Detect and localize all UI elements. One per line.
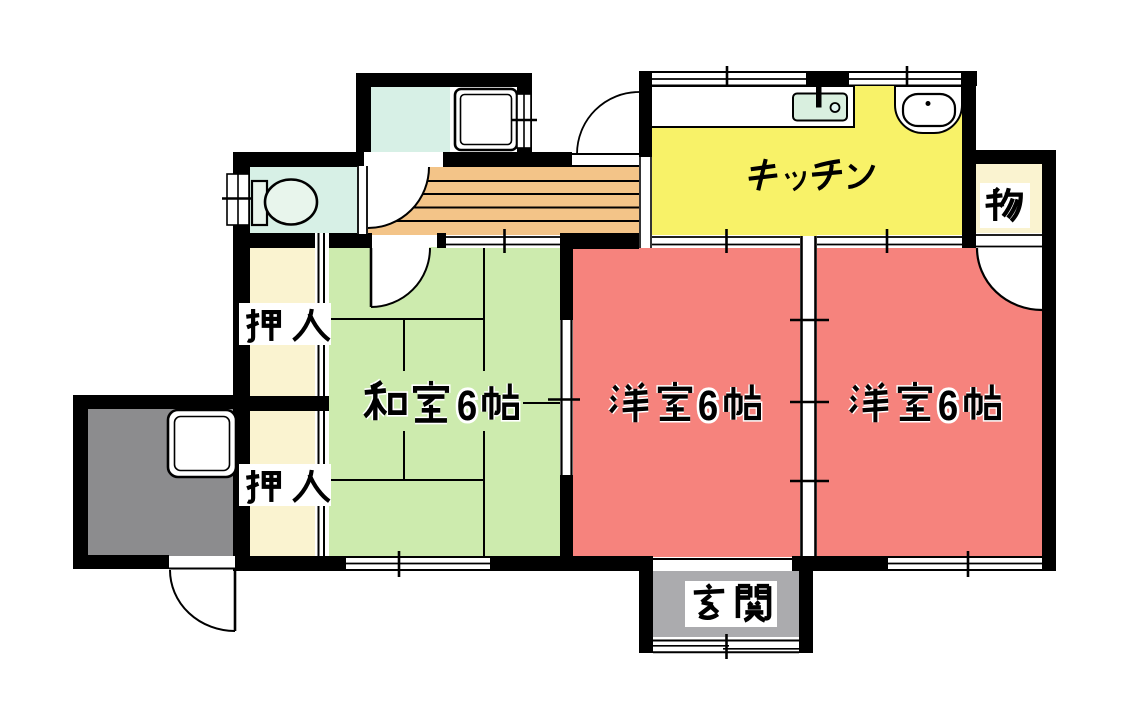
svg-text:6: 6 <box>698 382 718 429</box>
svg-text:6: 6 <box>457 382 477 429</box>
svg-text:6: 6 <box>938 382 958 429</box>
